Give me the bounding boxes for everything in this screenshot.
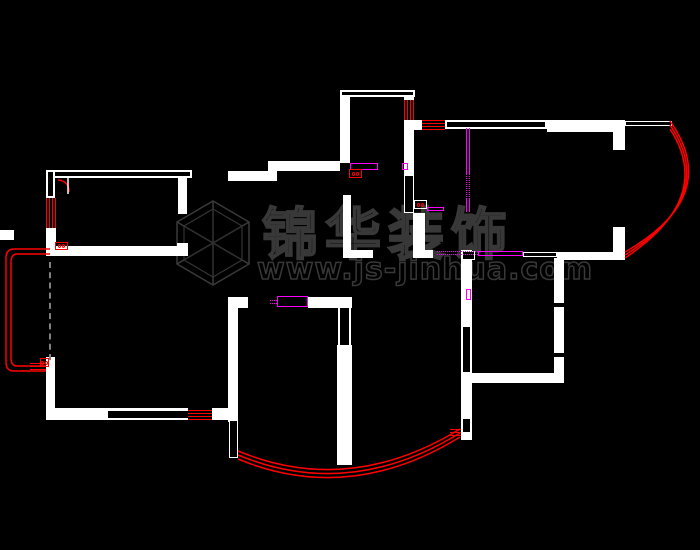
plan-curve [625, 125, 687, 255]
plan-curve [11, 254, 50, 366]
plan-curve [238, 437, 460, 478]
floor-plan-canvas: 锦华装饰 www.js-jinhua.com [0, 0, 700, 550]
plan-curve [625, 129, 685, 258]
plan-curve [238, 433, 460, 474]
plan-curve [238, 429, 460, 470]
plan-curve [6, 249, 50, 371]
plan-arcs-layer [0, 0, 700, 550]
